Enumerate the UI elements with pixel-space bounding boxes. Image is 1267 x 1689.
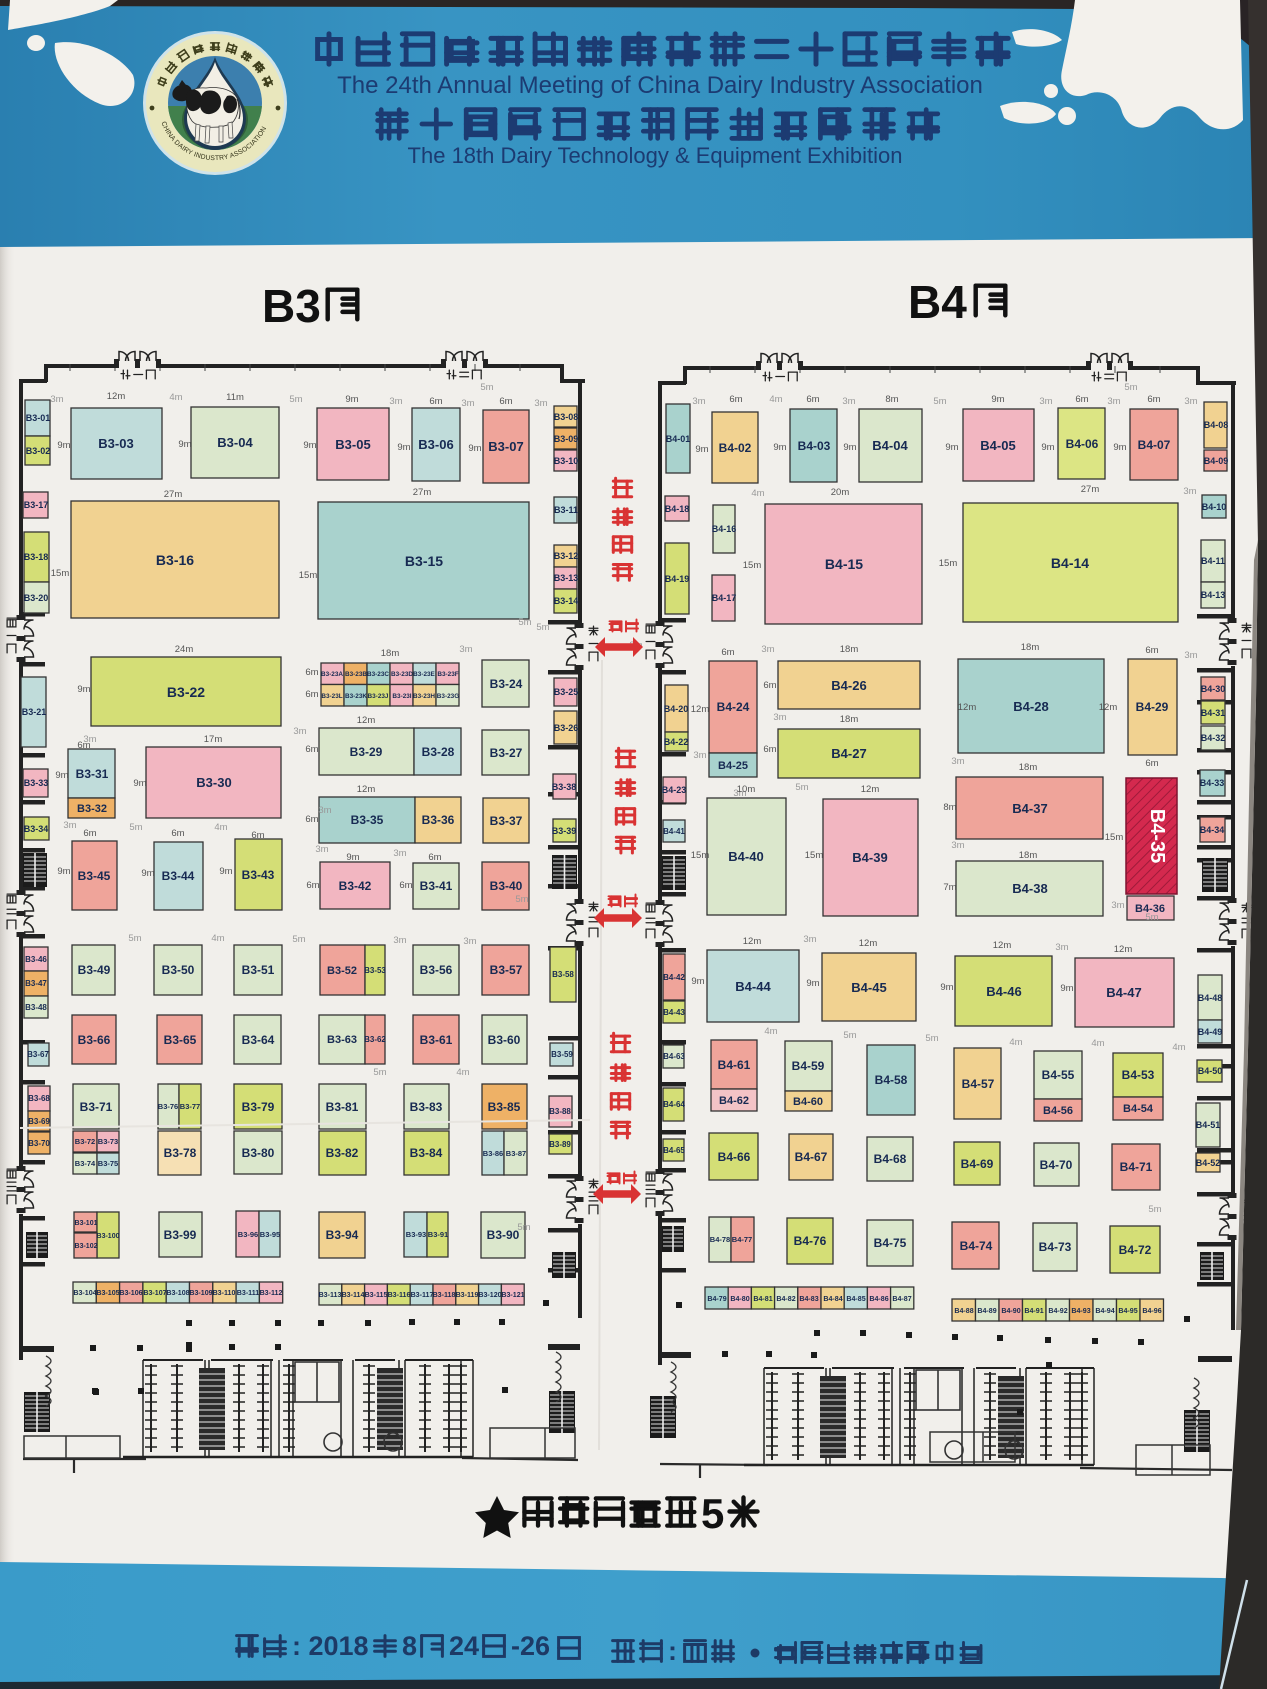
svg-text:3m: 3m xyxy=(1107,396,1120,407)
svg-text:3m: 3m xyxy=(1184,650,1197,661)
svg-text:B3-14: B3-14 xyxy=(554,596,579,606)
svg-text:B4-32: B4-32 xyxy=(1201,733,1226,743)
svg-text:B4-19: B4-19 xyxy=(665,574,690,584)
svg-text:B3-116: B3-116 xyxy=(388,1291,411,1299)
svg-text:B4-46: B4-46 xyxy=(986,984,1021,999)
svg-text:B3-07: B3-07 xyxy=(488,439,523,454)
svg-text:B3-120: B3-120 xyxy=(478,1291,501,1299)
svg-text:3m: 3m xyxy=(1111,900,1124,911)
svg-text:B4-35: B4-35 xyxy=(1146,809,1168,863)
svg-text:B3-22: B3-22 xyxy=(167,684,205,700)
svg-text:4m: 4m xyxy=(169,392,182,403)
svg-text:B4-42: B4-42 xyxy=(663,973,685,982)
svg-text:3m: 3m xyxy=(63,820,76,831)
svg-text:11m: 11m xyxy=(226,392,244,403)
svg-text:B3-11: B3-11 xyxy=(554,505,578,515)
svg-text:B3-121: B3-121 xyxy=(501,1291,524,1299)
svg-text:B3-81: B3-81 xyxy=(326,1100,359,1114)
svg-text:B3-38: B3-38 xyxy=(552,782,577,792)
svg-text:B3-23E: B3-23E xyxy=(413,671,435,678)
svg-text:B4-95: B4-95 xyxy=(1118,1307,1137,1315)
svg-text:9m: 9m xyxy=(773,442,786,453)
svg-text:B3-111: B3-111 xyxy=(237,1289,260,1297)
svg-text:B4-24: B4-24 xyxy=(717,700,750,714)
svg-text:B3-31: B3-31 xyxy=(76,767,109,781)
svg-text:5m: 5m xyxy=(933,396,946,407)
svg-text:18m: 18m xyxy=(381,648,400,659)
svg-text:B3-17: B3-17 xyxy=(24,500,49,510)
svg-text:B3-23B: B3-23B xyxy=(345,671,367,678)
svg-text:B3-61: B3-61 xyxy=(420,1033,453,1047)
svg-text:B4-75: B4-75 xyxy=(874,1236,907,1250)
svg-text:5m: 5m xyxy=(843,1030,856,1041)
svg-text:B3-50: B3-50 xyxy=(162,963,195,977)
svg-text:B4-72: B4-72 xyxy=(1119,1243,1152,1257)
svg-text:B3-53: B3-53 xyxy=(364,966,386,975)
svg-text:B3-24: B3-24 xyxy=(490,677,523,691)
svg-text:B3-23L: B3-23L xyxy=(321,693,342,700)
svg-text:9m: 9m xyxy=(397,442,410,453)
svg-text:B4-20: B4-20 xyxy=(664,704,689,714)
svg-text:12m: 12m xyxy=(1099,702,1118,713)
svg-text:5m: 5m xyxy=(373,1067,386,1078)
svg-text:5m: 5m xyxy=(795,782,808,793)
svg-text:5m: 5m xyxy=(518,617,531,628)
svg-text:B3-32: B3-32 xyxy=(77,803,107,815)
svg-text:B3-91: B3-91 xyxy=(428,1230,448,1239)
svg-text:B3-65: B3-65 xyxy=(164,1033,197,1047)
svg-text:6m: 6m xyxy=(305,814,318,825)
svg-text:B3-82: B3-82 xyxy=(326,1146,359,1160)
svg-text:B4-76: B4-76 xyxy=(794,1234,827,1248)
svg-text:9m: 9m xyxy=(991,394,1004,405)
svg-text:B3-107: B3-107 xyxy=(143,1289,166,1297)
svg-text:B4-30: B4-30 xyxy=(1201,684,1226,694)
svg-text:B3-40: B3-40 xyxy=(490,879,523,893)
svg-text:4m: 4m xyxy=(751,488,764,499)
svg-text:B3-13: B3-13 xyxy=(554,573,579,583)
svg-text:B4-01: B4-01 xyxy=(666,434,691,444)
svg-text:5m: 5m xyxy=(925,1033,938,1044)
svg-text:B3-96: B3-96 xyxy=(238,1230,258,1239)
svg-text:5m: 5m xyxy=(480,382,493,393)
svg-text:B4-90: B4-90 xyxy=(1001,1307,1020,1315)
svg-text:The 18th Dairy Technology & Eq: The 18th Dairy Technology & Equipment Ex… xyxy=(408,143,903,168)
svg-text:B3-60: B3-60 xyxy=(488,1033,521,1047)
svg-text:B3-03: B3-03 xyxy=(98,436,133,451)
svg-text:5m: 5m xyxy=(1148,1204,1161,1215)
svg-text:B3-34: B3-34 xyxy=(24,824,49,834)
svg-text:B4-09: B4-09 xyxy=(1204,456,1229,466)
svg-text:: 2018: : 2018 xyxy=(292,1631,369,1661)
svg-text:B3-109: B3-109 xyxy=(189,1289,212,1297)
svg-text:B3-56: B3-56 xyxy=(420,963,453,977)
svg-text:B3-102: B3-102 xyxy=(75,1243,98,1250)
svg-text:The 24th Annual Meeting of Chi: The 24th Annual Meeting of China Dairy I… xyxy=(337,72,983,99)
svg-text:B3-95: B3-95 xyxy=(260,1230,280,1239)
svg-text:3m: 3m xyxy=(534,398,547,409)
svg-text:B4-94: B4-94 xyxy=(1095,1307,1114,1315)
svg-text:B4-67: B4-67 xyxy=(795,1150,828,1164)
svg-text:B3-64: B3-64 xyxy=(242,1033,275,1047)
svg-text:9m: 9m xyxy=(1113,442,1126,453)
svg-text:B3-52: B3-52 xyxy=(327,965,357,977)
svg-text:B3-89: B3-89 xyxy=(549,1140,571,1149)
svg-text:B4-77: B4-77 xyxy=(732,1235,752,1244)
svg-text:B4-28: B4-28 xyxy=(1013,699,1048,714)
svg-text:B3-114: B3-114 xyxy=(342,1291,365,1299)
svg-text:B3-48: B3-48 xyxy=(25,1003,47,1012)
svg-text:5m: 5m xyxy=(517,1222,530,1233)
svg-text:B4-13: B4-13 xyxy=(1201,590,1226,600)
svg-text:6m: 6m xyxy=(763,680,776,691)
svg-text:B4-49: B4-49 xyxy=(1198,1027,1223,1037)
svg-text:B4-59: B4-59 xyxy=(792,1059,825,1073)
svg-text:4m: 4m xyxy=(1009,1037,1022,1048)
svg-text:B4-10: B4-10 xyxy=(1202,502,1227,512)
svg-text:B4-43: B4-43 xyxy=(663,1008,685,1017)
svg-text:3m: 3m xyxy=(1039,396,1052,407)
svg-text:15m: 15m xyxy=(805,850,824,861)
svg-text:B4: B4 xyxy=(908,276,967,328)
svg-text:B3-45: B3-45 xyxy=(78,869,111,883)
svg-text:B4-87: B4-87 xyxy=(892,1295,911,1303)
svg-text:B3-108: B3-108 xyxy=(166,1289,189,1297)
svg-text:B4-38: B4-38 xyxy=(1012,881,1047,896)
svg-text:B3-62: B3-62 xyxy=(364,1035,386,1044)
svg-text:3m: 3m xyxy=(315,844,328,855)
svg-text:B3-58: B3-58 xyxy=(552,970,574,979)
svg-text:B4-71: B4-71 xyxy=(1120,1160,1153,1174)
svg-text:B3-90: B3-90 xyxy=(487,1228,520,1242)
svg-text:27m: 27m xyxy=(1081,484,1100,495)
svg-text:B4-88: B4-88 xyxy=(954,1307,973,1315)
svg-text:B3-02: B3-02 xyxy=(26,446,51,456)
svg-text:9m: 9m xyxy=(77,684,90,695)
svg-text:B4-96: B4-96 xyxy=(1142,1307,1161,1315)
svg-text:B3-112: B3-112 xyxy=(260,1289,283,1297)
svg-text:B3-42: B3-42 xyxy=(339,879,372,893)
svg-text:9m: 9m xyxy=(468,443,481,454)
svg-text:3m: 3m xyxy=(803,934,816,945)
svg-text:B3-25: B3-25 xyxy=(554,687,579,697)
svg-text:9m: 9m xyxy=(178,439,191,450)
svg-text:9m: 9m xyxy=(346,852,359,863)
svg-text:10m: 10m xyxy=(737,784,756,795)
svg-text:3m: 3m xyxy=(50,394,63,405)
svg-text:B4-66: B4-66 xyxy=(718,1150,751,1164)
svg-text:B3-51: B3-51 xyxy=(242,963,275,977)
svg-text:B4-55: B4-55 xyxy=(1042,1068,1075,1082)
svg-text:B3-23J: B3-23J xyxy=(368,693,389,700)
svg-text:12m: 12m xyxy=(1114,944,1133,955)
svg-text:B4-31: B4-31 xyxy=(1201,708,1226,718)
svg-text:B4-40: B4-40 xyxy=(728,849,763,864)
svg-text:9m: 9m xyxy=(219,866,232,877)
svg-text:B3-28: B3-28 xyxy=(422,745,455,759)
svg-text:6m: 6m xyxy=(499,396,512,407)
svg-text:B4-17: B4-17 xyxy=(712,593,737,603)
svg-text:B4-82: B4-82 xyxy=(776,1295,795,1303)
svg-text:B3-36: B3-36 xyxy=(422,813,455,827)
svg-text:3m: 3m xyxy=(1184,396,1197,407)
svg-text:B4-91: B4-91 xyxy=(1024,1307,1043,1315)
svg-text:B4-58: B4-58 xyxy=(875,1073,908,1087)
svg-text:12m: 12m xyxy=(107,391,126,402)
svg-text:B4-34: B4-34 xyxy=(1200,825,1225,835)
svg-text:B3-23A: B3-23A xyxy=(321,671,343,678)
svg-text:3m: 3m xyxy=(1055,942,1068,953)
svg-text:B3-105: B3-105 xyxy=(96,1289,119,1297)
svg-text:B3-99: B3-99 xyxy=(164,1228,197,1242)
svg-text:B3-71: B3-71 xyxy=(80,1100,113,1114)
svg-text:B4-44: B4-44 xyxy=(735,979,771,994)
svg-text:12m: 12m xyxy=(859,938,878,949)
svg-text:B3-83: B3-83 xyxy=(410,1100,443,1114)
svg-text:B4-47: B4-47 xyxy=(1106,985,1141,1000)
svg-text:4m: 4m xyxy=(211,933,224,944)
svg-text:6m: 6m xyxy=(429,396,442,407)
svg-text:4m: 4m xyxy=(1172,1042,1185,1053)
svg-text:15m: 15m xyxy=(51,568,70,579)
svg-text:B4-89: B4-89 xyxy=(977,1307,996,1315)
svg-text:3m: 3m xyxy=(842,396,855,407)
svg-text:B4-18: B4-18 xyxy=(665,504,690,514)
svg-text:6m: 6m xyxy=(83,828,96,839)
svg-text:B3-87: B3-87 xyxy=(506,1149,526,1158)
svg-text:B3-79: B3-79 xyxy=(242,1100,275,1114)
svg-text:B3-08: B3-08 xyxy=(554,412,579,422)
svg-text:9m: 9m xyxy=(1060,983,1073,994)
svg-text:12m: 12m xyxy=(691,704,710,715)
svg-text:B3-63: B3-63 xyxy=(327,1034,357,1046)
svg-text:B3-59: B3-59 xyxy=(551,1050,573,1059)
svg-text:B4-41: B4-41 xyxy=(663,827,685,836)
svg-text:15m: 15m xyxy=(939,558,958,569)
svg-text:7m: 7m xyxy=(943,882,956,893)
svg-text:B3-05: B3-05 xyxy=(335,437,370,452)
svg-text:9m: 9m xyxy=(1041,442,1054,453)
svg-text:B3: B3 xyxy=(262,280,321,332)
svg-text:B4-85: B4-85 xyxy=(846,1295,865,1303)
svg-text:5m: 5m xyxy=(536,622,549,633)
svg-text:9m: 9m xyxy=(945,442,958,453)
svg-text:B4-33: B4-33 xyxy=(1200,778,1225,788)
svg-text:20m: 20m xyxy=(831,487,850,498)
svg-text:B3-23G: B3-23G xyxy=(437,693,459,700)
svg-text:9m: 9m xyxy=(843,442,856,453)
svg-text:4m: 4m xyxy=(769,394,782,405)
svg-text:6m: 6m xyxy=(1145,758,1158,769)
svg-text:B4-02: B4-02 xyxy=(719,441,752,455)
svg-text:B3-23K: B3-23K xyxy=(345,693,367,700)
svg-text:5m: 5m xyxy=(1145,912,1158,923)
svg-text:B4-07: B4-07 xyxy=(1138,438,1171,452)
svg-text:B4-16: B4-16 xyxy=(712,524,737,534)
svg-text:3m: 3m xyxy=(293,726,306,737)
svg-text:B3-37: B3-37 xyxy=(490,814,523,828)
svg-text:9m: 9m xyxy=(695,444,708,455)
svg-text:B4-04: B4-04 xyxy=(872,438,908,453)
svg-text:B4-64: B4-64 xyxy=(663,1100,685,1109)
svg-text:B3-73: B3-73 xyxy=(98,1137,118,1146)
svg-text:B4-14: B4-14 xyxy=(1051,555,1089,571)
svg-text:B3-30: B3-30 xyxy=(196,775,231,790)
svg-text:27m: 27m xyxy=(413,487,432,498)
svg-text:5m: 5m xyxy=(292,934,305,945)
svg-text:B3-26: B3-26 xyxy=(554,723,579,733)
svg-text:6m: 6m xyxy=(763,744,776,755)
svg-text:3m: 3m xyxy=(459,644,472,655)
svg-text:B4-79: B4-79 xyxy=(707,1295,726,1303)
svg-text:B3-20: B3-20 xyxy=(24,593,49,603)
svg-text:B4-84: B4-84 xyxy=(823,1295,842,1303)
svg-text:B4-54: B4-54 xyxy=(1123,1103,1154,1115)
svg-text:B3-68: B3-68 xyxy=(28,1094,50,1103)
svg-text:4m: 4m xyxy=(1091,1038,1104,1049)
svg-text:B3-57: B3-57 xyxy=(490,963,523,977)
svg-text:B4-69: B4-69 xyxy=(961,1157,994,1171)
svg-text:B3-04: B3-04 xyxy=(217,435,253,450)
svg-text:B4-83: B4-83 xyxy=(799,1295,818,1303)
svg-text:B4-74: B4-74 xyxy=(960,1239,993,1253)
svg-text:B3-12: B3-12 xyxy=(554,551,579,561)
svg-text:18m: 18m xyxy=(1019,762,1038,773)
svg-text:B3-01: B3-01 xyxy=(26,413,51,423)
svg-text:6m: 6m xyxy=(428,852,441,863)
svg-text:B3-49: B3-49 xyxy=(78,963,111,977)
svg-text:B3-33: B3-33 xyxy=(24,778,49,788)
svg-text:B4-22: B4-22 xyxy=(664,737,689,747)
svg-text:3m: 3m xyxy=(393,848,406,859)
svg-text:B4-48: B4-48 xyxy=(1198,993,1223,1003)
svg-text:B3-119: B3-119 xyxy=(456,1291,479,1299)
svg-text:17m: 17m xyxy=(204,734,223,745)
svg-text:B4-23: B4-23 xyxy=(662,785,687,795)
svg-text:B3-15: B3-15 xyxy=(405,553,443,569)
svg-text:B3-39: B3-39 xyxy=(552,826,577,836)
svg-text:3m: 3m xyxy=(318,805,331,816)
svg-text:12m: 12m xyxy=(357,715,376,726)
svg-text:B3-84: B3-84 xyxy=(410,1146,443,1160)
svg-text:B3-44: B3-44 xyxy=(162,869,195,883)
svg-text:B4-68: B4-68 xyxy=(874,1152,907,1166)
svg-text:4m: 4m xyxy=(456,1067,469,1078)
svg-text:B4-65: B4-65 xyxy=(663,1146,685,1155)
svg-text:9m: 9m xyxy=(133,778,146,789)
svg-text:B4-26: B4-26 xyxy=(831,678,866,693)
svg-text:9m: 9m xyxy=(345,394,358,405)
svg-text:B4-05: B4-05 xyxy=(980,438,1015,453)
svg-text:B4-51: B4-51 xyxy=(1196,1120,1221,1130)
svg-text:5m: 5m xyxy=(515,894,528,905)
svg-text:B3-41: B3-41 xyxy=(420,879,453,893)
svg-text:6m: 6m xyxy=(729,394,742,405)
svg-text:B4-80: B4-80 xyxy=(730,1295,749,1303)
svg-text:9m: 9m xyxy=(57,866,70,877)
svg-text:12m: 12m xyxy=(861,784,880,795)
svg-text:B4-86: B4-86 xyxy=(869,1295,888,1303)
svg-text:12m: 12m xyxy=(993,940,1012,951)
svg-text:6m: 6m xyxy=(306,880,319,891)
svg-text:B3-115: B3-115 xyxy=(365,1291,388,1299)
svg-text:B4-50: B4-50 xyxy=(1198,1066,1223,1076)
svg-text:3m: 3m xyxy=(773,712,786,723)
svg-text:24m: 24m xyxy=(175,644,194,655)
svg-text:B4-03: B4-03 xyxy=(798,439,831,453)
svg-text:B4-45: B4-45 xyxy=(851,980,886,995)
svg-text:12m: 12m xyxy=(743,936,762,947)
svg-text:6m: 6m xyxy=(305,667,318,678)
svg-text:6m: 6m xyxy=(1145,645,1158,656)
svg-text:B3-27: B3-27 xyxy=(490,746,523,760)
svg-text:B3-100: B3-100 xyxy=(97,1233,120,1240)
svg-text:9m: 9m xyxy=(691,976,704,987)
svg-text:B3-29: B3-29 xyxy=(350,745,383,759)
svg-text:B4-06: B4-06 xyxy=(1066,437,1099,451)
svg-text:B3-35: B3-35 xyxy=(351,813,384,827)
svg-text:B3-46: B3-46 xyxy=(25,955,47,964)
svg-text:B3-77: B3-77 xyxy=(180,1102,200,1111)
svg-text:15m: 15m xyxy=(691,850,710,861)
svg-text:B3-104: B3-104 xyxy=(73,1289,96,1297)
svg-text:15m: 15m xyxy=(743,560,762,571)
svg-text:3m: 3m xyxy=(761,644,774,655)
svg-text:6m: 6m xyxy=(305,689,318,700)
svg-text:B4-70: B4-70 xyxy=(1040,1158,1073,1172)
svg-text:B3-113: B3-113 xyxy=(319,1291,342,1299)
svg-text:18m: 18m xyxy=(840,714,859,725)
svg-text:5m: 5m xyxy=(289,394,302,405)
svg-text:6m: 6m xyxy=(171,828,184,839)
svg-text:B3-117: B3-117 xyxy=(411,1291,434,1299)
svg-text:-26: -26 xyxy=(511,1631,550,1661)
svg-text:B3-43: B3-43 xyxy=(242,868,275,882)
svg-text:B3-06: B3-06 xyxy=(418,437,453,452)
svg-text:B3-86: B3-86 xyxy=(483,1149,503,1158)
svg-text:18m: 18m xyxy=(1021,642,1040,653)
svg-text:B4-39: B4-39 xyxy=(852,850,887,865)
svg-text:B4-81: B4-81 xyxy=(753,1295,772,1303)
svg-text:B4-11: B4-11 xyxy=(1201,556,1225,566)
svg-text:6m: 6m xyxy=(399,880,412,891)
svg-text:B3-23F: B3-23F xyxy=(437,671,458,678)
svg-text:3m: 3m xyxy=(693,750,706,761)
svg-text:3m: 3m xyxy=(951,756,964,767)
svg-text:B4-15: B4-15 xyxy=(825,556,863,572)
svg-text:B3-74: B3-74 xyxy=(75,1159,96,1168)
svg-text:B3-16: B3-16 xyxy=(156,552,194,568)
svg-text:9m: 9m xyxy=(57,440,70,451)
svg-text:27m: 27m xyxy=(164,489,183,500)
svg-text:B3-67: B3-67 xyxy=(27,1050,49,1059)
svg-text:5m: 5m xyxy=(129,822,142,833)
svg-text:B3-110: B3-110 xyxy=(213,1289,236,1297)
svg-text:B3-88: B3-88 xyxy=(549,1107,571,1116)
svg-text:B3-23I: B3-23I xyxy=(392,693,411,700)
svg-text:B4-73: B4-73 xyxy=(1039,1240,1072,1254)
svg-text:8m: 8m xyxy=(885,394,898,405)
svg-text:B3-23C: B3-23C xyxy=(367,671,389,678)
svg-text:9m: 9m xyxy=(806,978,819,989)
svg-text:B3-23H: B3-23H xyxy=(413,693,435,700)
svg-text:B3-70: B3-70 xyxy=(28,1139,50,1148)
svg-text:B4-60: B4-60 xyxy=(793,1096,823,1108)
svg-text:B3-93: B3-93 xyxy=(406,1230,426,1239)
svg-text:9m: 9m xyxy=(940,982,953,993)
svg-text:15m: 15m xyxy=(1105,832,1124,843)
svg-text:5m: 5m xyxy=(1124,382,1137,393)
